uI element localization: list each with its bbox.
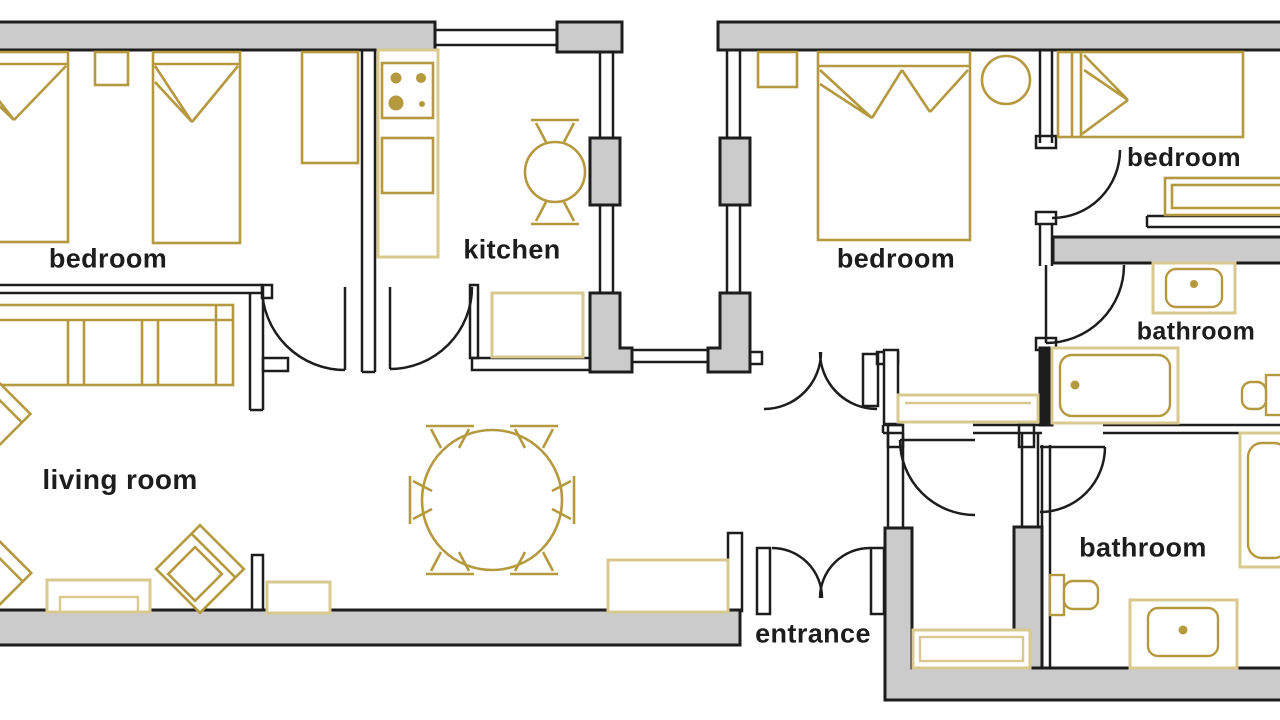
- side-table: [267, 582, 330, 613]
- door-closet-nook: [900, 440, 975, 515]
- room-label-bathroom-bottom: bathroom: [1079, 535, 1207, 562]
- toilet-bowl: [1242, 382, 1266, 409]
- room-label-kitchen: kitchen: [463, 237, 560, 264]
- wardrobe: [302, 52, 358, 163]
- entrance-sideboard: [608, 560, 728, 612]
- window-bedroom2-east-upper: [1040, 50, 1052, 143]
- room-label-living-room: living room: [42, 466, 197, 494]
- wall-living-corner: [250, 293, 263, 410]
- chair: [531, 120, 579, 142]
- bedroom-right-furniture: [1058, 52, 1280, 215]
- nook-bench: [913, 630, 1030, 668]
- wall-bathroom1-north: [1053, 237, 1280, 263]
- toilet-bowl: [1064, 581, 1098, 609]
- hall-bench: [898, 395, 1038, 422]
- bathtub-drain: [1071, 381, 1080, 390]
- armchair: [156, 525, 244, 613]
- stove-burner: [391, 73, 402, 84]
- sink-drain: [1179, 626, 1188, 635]
- kitchen-furniture: [378, 50, 585, 357]
- toilet-tank: [1050, 575, 1064, 615]
- floor-plan-drawing: [0, 0, 1280, 720]
- armchair: [0, 528, 31, 619]
- nightstand: [758, 52, 797, 87]
- toilet-tank: [1266, 375, 1280, 415]
- wall-bedroom1-kitchen: [362, 50, 375, 372]
- room-label-bedroom-left: bedroom: [49, 246, 167, 273]
- wall-top-left: [0, 22, 435, 50]
- window-bedroom2-east-lower: [1040, 224, 1052, 266]
- room-label-bathroom-top: bathroom: [1137, 320, 1255, 345]
- wall-bedroom3-south: [1147, 216, 1280, 227]
- dining-table: [422, 430, 562, 570]
- window-shaft-bottom: [632, 350, 708, 362]
- wall-bottom-left: [0, 610, 740, 645]
- wall-pillar: [708, 293, 750, 372]
- floor-plan: bedroom kitchen bedroom bedroom bathroom…: [0, 0, 1280, 720]
- entrance-double-door: [772, 548, 870, 598]
- door-bathroom-top: [1046, 265, 1124, 343]
- kitchen-side-table: [492, 293, 583, 357]
- kitchen-table: [525, 142, 585, 202]
- sofa: [0, 305, 233, 385]
- room-label-entrance: entrance: [755, 621, 871, 648]
- double-door-bedroom-middle: [764, 352, 877, 409]
- window-top: [433, 30, 557, 45]
- door-bedroom-right: [1052, 150, 1120, 218]
- wall-pillar: [720, 138, 750, 205]
- armchair-outer: [156, 525, 244, 613]
- wall-pillar: [590, 293, 632, 372]
- double-bed: [818, 52, 970, 240]
- door-kitchen: [390, 287, 472, 369]
- bedroom-middle-furniture: [758, 52, 1030, 240]
- wall-living-stub: [252, 555, 263, 612]
- nightstand: [95, 52, 128, 85]
- wall-top-middle: [557, 22, 622, 52]
- single-bed: [1058, 52, 1243, 137]
- wall-kitchen-south: [472, 358, 590, 370]
- kitchen-counter: [378, 50, 438, 257]
- shower: [1240, 433, 1280, 567]
- desk: [1165, 178, 1280, 215]
- wall-hall-pier: [884, 350, 898, 424]
- wall-bedroom1-living: [0, 285, 263, 293]
- bedroom-left-furniture: [0, 52, 358, 243]
- stove-burner: [419, 101, 425, 107]
- wall-pillar: [590, 138, 620, 205]
- chair: [531, 202, 579, 224]
- wall-bathroom1-jamb: [1040, 348, 1052, 425]
- room-label-bedroom-middle: bedroom: [837, 246, 955, 273]
- entrance-door-leaf: [871, 548, 884, 614]
- single-bed: [0, 52, 68, 242]
- wall-stub-vestibule: [263, 358, 288, 371]
- round-chair: [982, 56, 1030, 104]
- entrance-door-leaf: [757, 548, 770, 614]
- room-label-bedroom-right: bedroom: [1127, 144, 1241, 170]
- stove-burner: [389, 96, 404, 111]
- stove-burner: [416, 73, 426, 83]
- wall-top-right: [718, 22, 1280, 50]
- wall-entrance-stub: [728, 533, 742, 611]
- sink-drain: [1190, 280, 1198, 288]
